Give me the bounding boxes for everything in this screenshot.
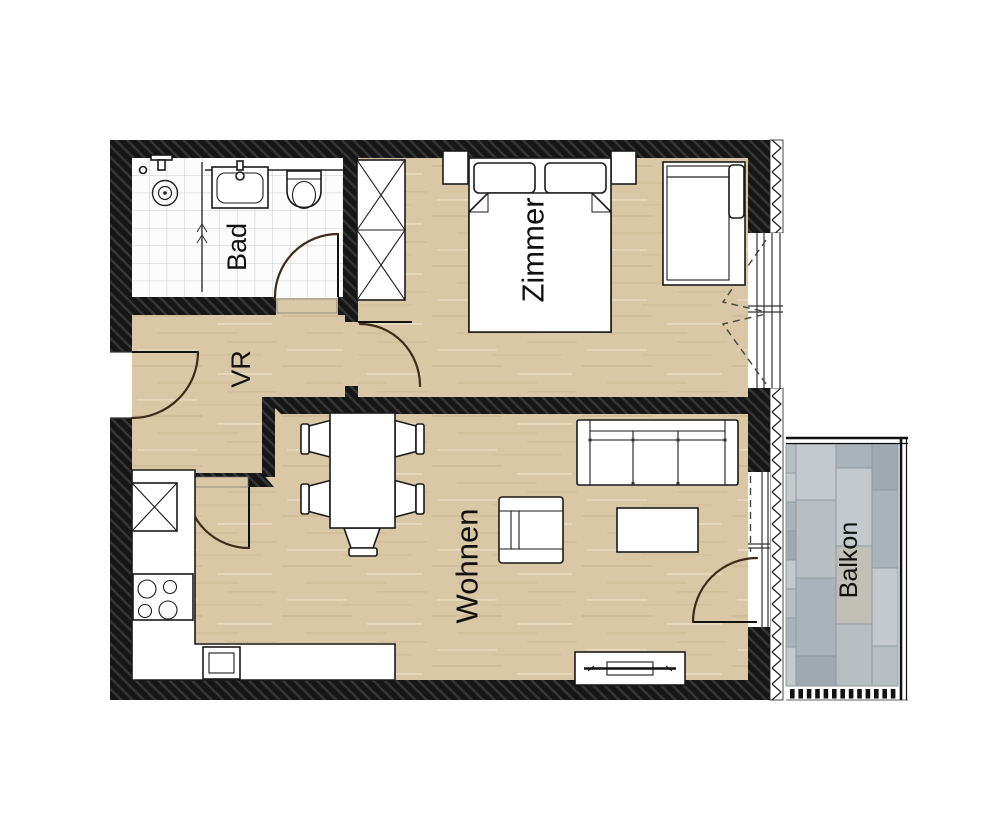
baluster <box>798 689 803 699</box>
living-window <box>748 472 770 627</box>
balcony-tile <box>836 444 872 468</box>
balcony-tile <box>786 560 796 589</box>
dining-chair-back <box>416 424 424 454</box>
wall-top <box>110 140 770 158</box>
wall-bath-bedroom <box>343 158 358 297</box>
dining-chair <box>395 421 416 458</box>
wall-hall-bedroom-lower <box>345 386 358 398</box>
dining-chair-back <box>349 548 377 556</box>
baluster <box>849 689 854 699</box>
insulation-strip-upper <box>770 140 783 233</box>
baluster <box>874 689 879 699</box>
room-label-zimmer: Zimmer <box>516 197 551 302</box>
balcony-tile <box>796 500 836 578</box>
living-window-frame <box>748 472 770 627</box>
toilet-bowl-outline <box>287 171 321 208</box>
wall-right-upper <box>748 158 770 233</box>
dining-chair <box>309 421 330 458</box>
dining-chair <box>344 528 380 548</box>
balcony-tile <box>872 444 898 490</box>
wall-hall-bedroom-upper <box>345 297 358 322</box>
sofa <box>577 420 738 485</box>
wall-left-lower <box>110 418 132 700</box>
baluster <box>807 689 812 699</box>
baluster <box>840 689 845 699</box>
dining-chair <box>395 481 416 518</box>
wall-hall-living-vertical <box>262 397 275 477</box>
balcony-tile <box>872 568 898 646</box>
floor-plan-page: Bad VR Zimmer Wohnen Balkon <box>0 0 1007 836</box>
room-label-vr: VR <box>226 350 256 388</box>
wall-left-upper <box>110 140 132 352</box>
kitchen-sink <box>203 647 240 679</box>
coffee-table <box>617 508 698 552</box>
sofa-outline <box>577 420 738 485</box>
baluster <box>857 689 862 699</box>
balcony-tile <box>872 646 898 686</box>
dining-chair <box>309 481 330 518</box>
armchair <box>499 497 563 563</box>
balcony-tile <box>786 444 796 473</box>
baluster <box>790 689 795 699</box>
dining-chair-back <box>301 424 309 454</box>
shower-valve-icon <box>140 167 147 174</box>
baluster <box>832 689 837 699</box>
room-label-wohnen: Wohnen <box>450 509 485 624</box>
bathroom-door-threshold <box>277 299 337 313</box>
baluster <box>866 689 871 699</box>
washbasin-tap-icon <box>237 161 243 170</box>
wardrobe <box>357 160 405 300</box>
balcony-tile <box>872 490 898 568</box>
wall-right-lower <box>748 627 770 680</box>
daybed-armrest <box>729 165 744 218</box>
balcony-tile <box>786 473 796 502</box>
exterior-insulation-hatch <box>770 140 783 700</box>
balcony-tile <box>786 502 796 531</box>
balcony-tile <box>786 647 796 686</box>
washbasin <box>212 161 268 208</box>
daybed <box>663 162 745 285</box>
baluster <box>824 689 829 699</box>
toilet <box>287 171 321 209</box>
floor-plan-svg: Bad VR Zimmer Wohnen Balkon <box>0 0 1007 836</box>
baluster <box>891 689 896 699</box>
balcony-tile <box>786 531 796 560</box>
balcony-tile <box>796 656 836 686</box>
entrance-threshold <box>110 352 132 418</box>
wall-living-north <box>264 397 748 414</box>
balcony-tile <box>786 589 796 618</box>
shower-drain-dot-icon <box>163 191 167 195</box>
baluster <box>882 689 887 699</box>
bedroom-window-frame <box>748 233 783 388</box>
nightstand-right <box>611 151 636 184</box>
dining-chair-back <box>416 484 424 514</box>
shower-tap-stem-icon <box>158 160 165 170</box>
dining-table <box>330 413 395 528</box>
cooktop <box>133 574 193 620</box>
room-label-balkon: Balkon <box>835 522 863 598</box>
bedroom-door-threshold <box>343 322 358 386</box>
balcony-tile <box>836 624 872 686</box>
balcony-tile <box>796 444 836 500</box>
room-label-bad: Bad <box>222 223 252 271</box>
balcony-tile <box>786 618 796 647</box>
nightstand-left <box>443 151 468 184</box>
baluster <box>815 689 820 699</box>
wall-right-middle <box>748 388 770 472</box>
dining-chair-back <box>301 484 309 514</box>
balcony-tile <box>796 578 836 656</box>
tv-sideboard <box>575 652 685 685</box>
pillow-right <box>545 163 606 193</box>
wall-bath-south-left <box>132 297 276 315</box>
armchair-outline <box>499 497 563 563</box>
pillow-left <box>474 163 535 193</box>
insulation-strip-lower <box>770 388 783 700</box>
washbasin-tap-knob-icon <box>236 172 244 180</box>
